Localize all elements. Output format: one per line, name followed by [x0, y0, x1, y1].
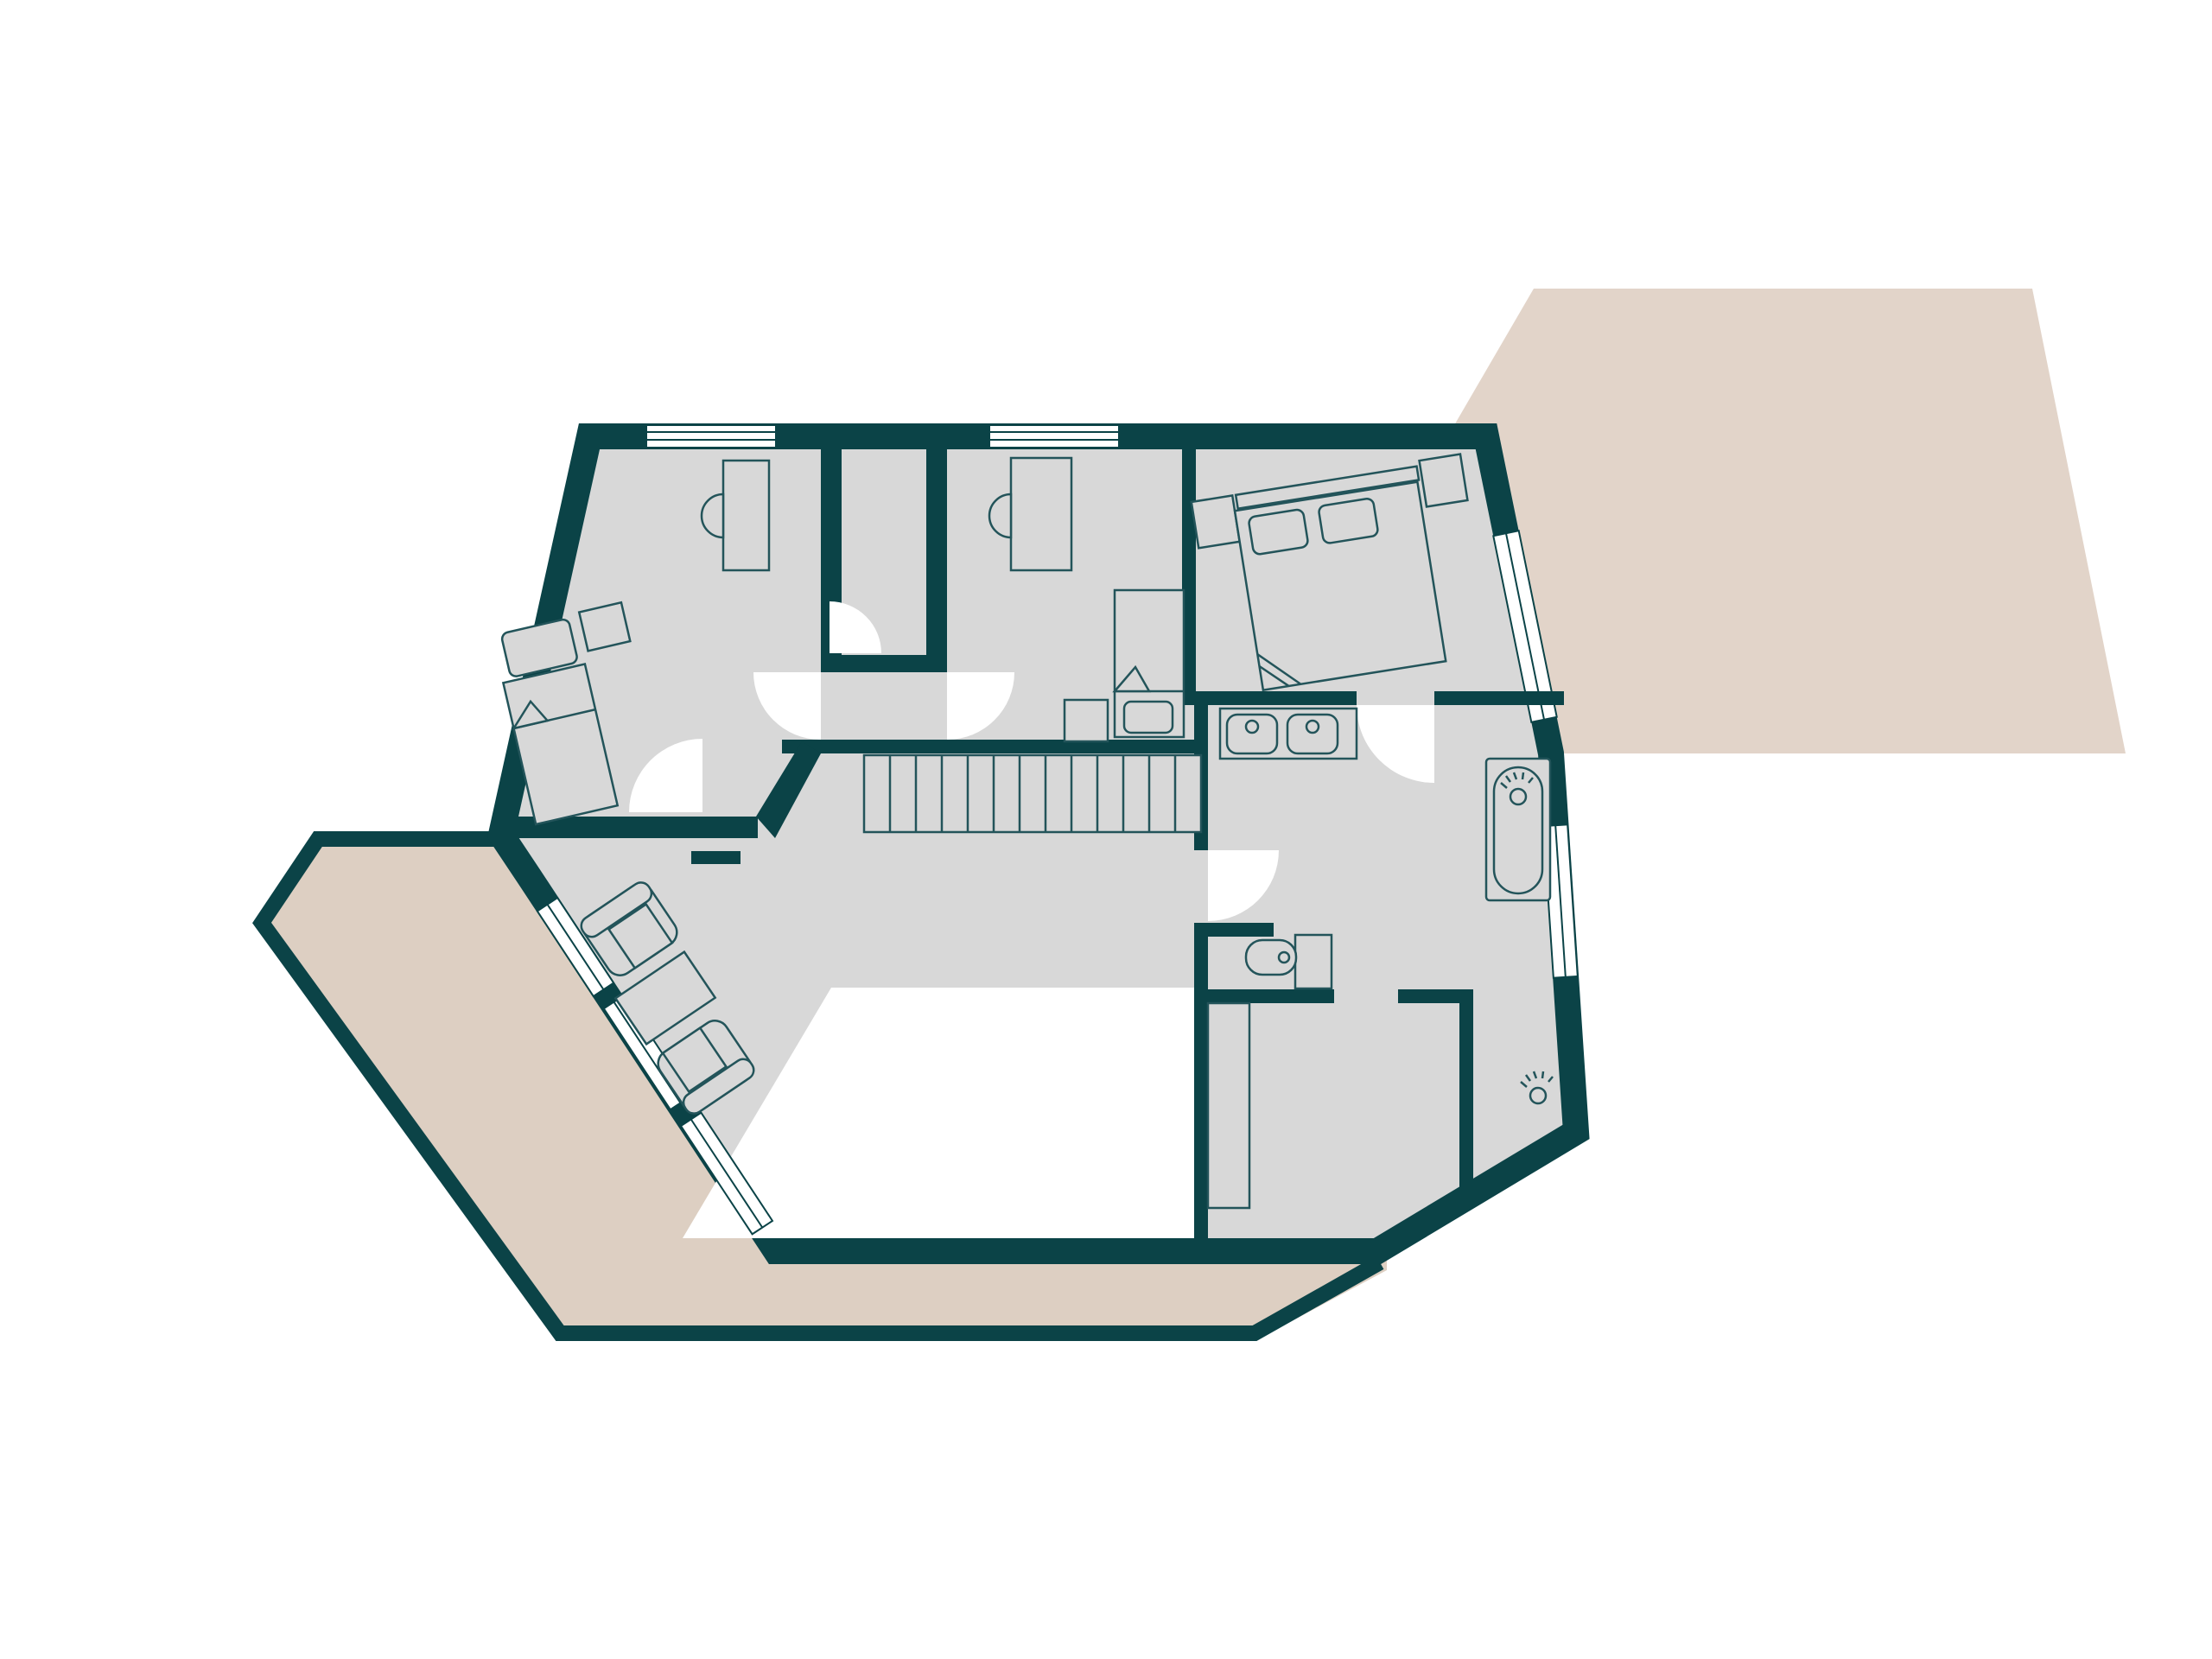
floor-plan-page	[0, 0, 2212, 1659]
bed-single-pillow	[1124, 702, 1173, 733]
wall-closet-south	[821, 655, 947, 672]
window-top-left	[646, 425, 776, 448]
sink-drain-left	[1246, 721, 1258, 733]
wall-bathroom-north-left	[1182, 691, 1357, 705]
window-top-left-glass	[646, 425, 776, 448]
nightstand-master-left	[1192, 495, 1240, 548]
wall-bathroom-west-lower	[1194, 930, 1208, 1238]
wall-dressing-east	[1459, 989, 1473, 1194]
wall-stub-living	[691, 851, 741, 864]
wall-stair-hall	[782, 740, 1208, 753]
toilet-cistern	[1295, 935, 1332, 988]
bathtub-inner	[1494, 767, 1542, 893]
desk-left-room	[723, 461, 769, 570]
bathtub	[1486, 759, 1550, 900]
staircase	[864, 755, 1201, 832]
staircase-outline	[864, 755, 1201, 832]
window-top-middle-glass	[989, 425, 1119, 448]
toilet-button	[1279, 952, 1289, 963]
bed-master-pillow-right	[1318, 498, 1378, 543]
wall-closet-east	[926, 449, 947, 657]
sink-drain-right	[1306, 721, 1319, 733]
desk-middle-room	[1011, 458, 1071, 570]
wall-toilet-stub	[1194, 923, 1274, 937]
wardrobe-dressing-room	[1208, 1003, 1249, 1208]
wall-bathroom-north-right	[1434, 691, 1564, 705]
nightstand-master-right	[1420, 454, 1468, 507]
floor-plan-canvas	[0, 0, 2212, 1659]
bed-single-middle-room	[1115, 590, 1184, 737]
nightstand-left-room	[579, 602, 630, 651]
stool-middle-room	[1065, 700, 1108, 741]
bed-master-pillow-left	[1248, 509, 1308, 555]
wall-toilet-south	[1208, 989, 1334, 1003]
window-top-middle	[989, 425, 1119, 448]
